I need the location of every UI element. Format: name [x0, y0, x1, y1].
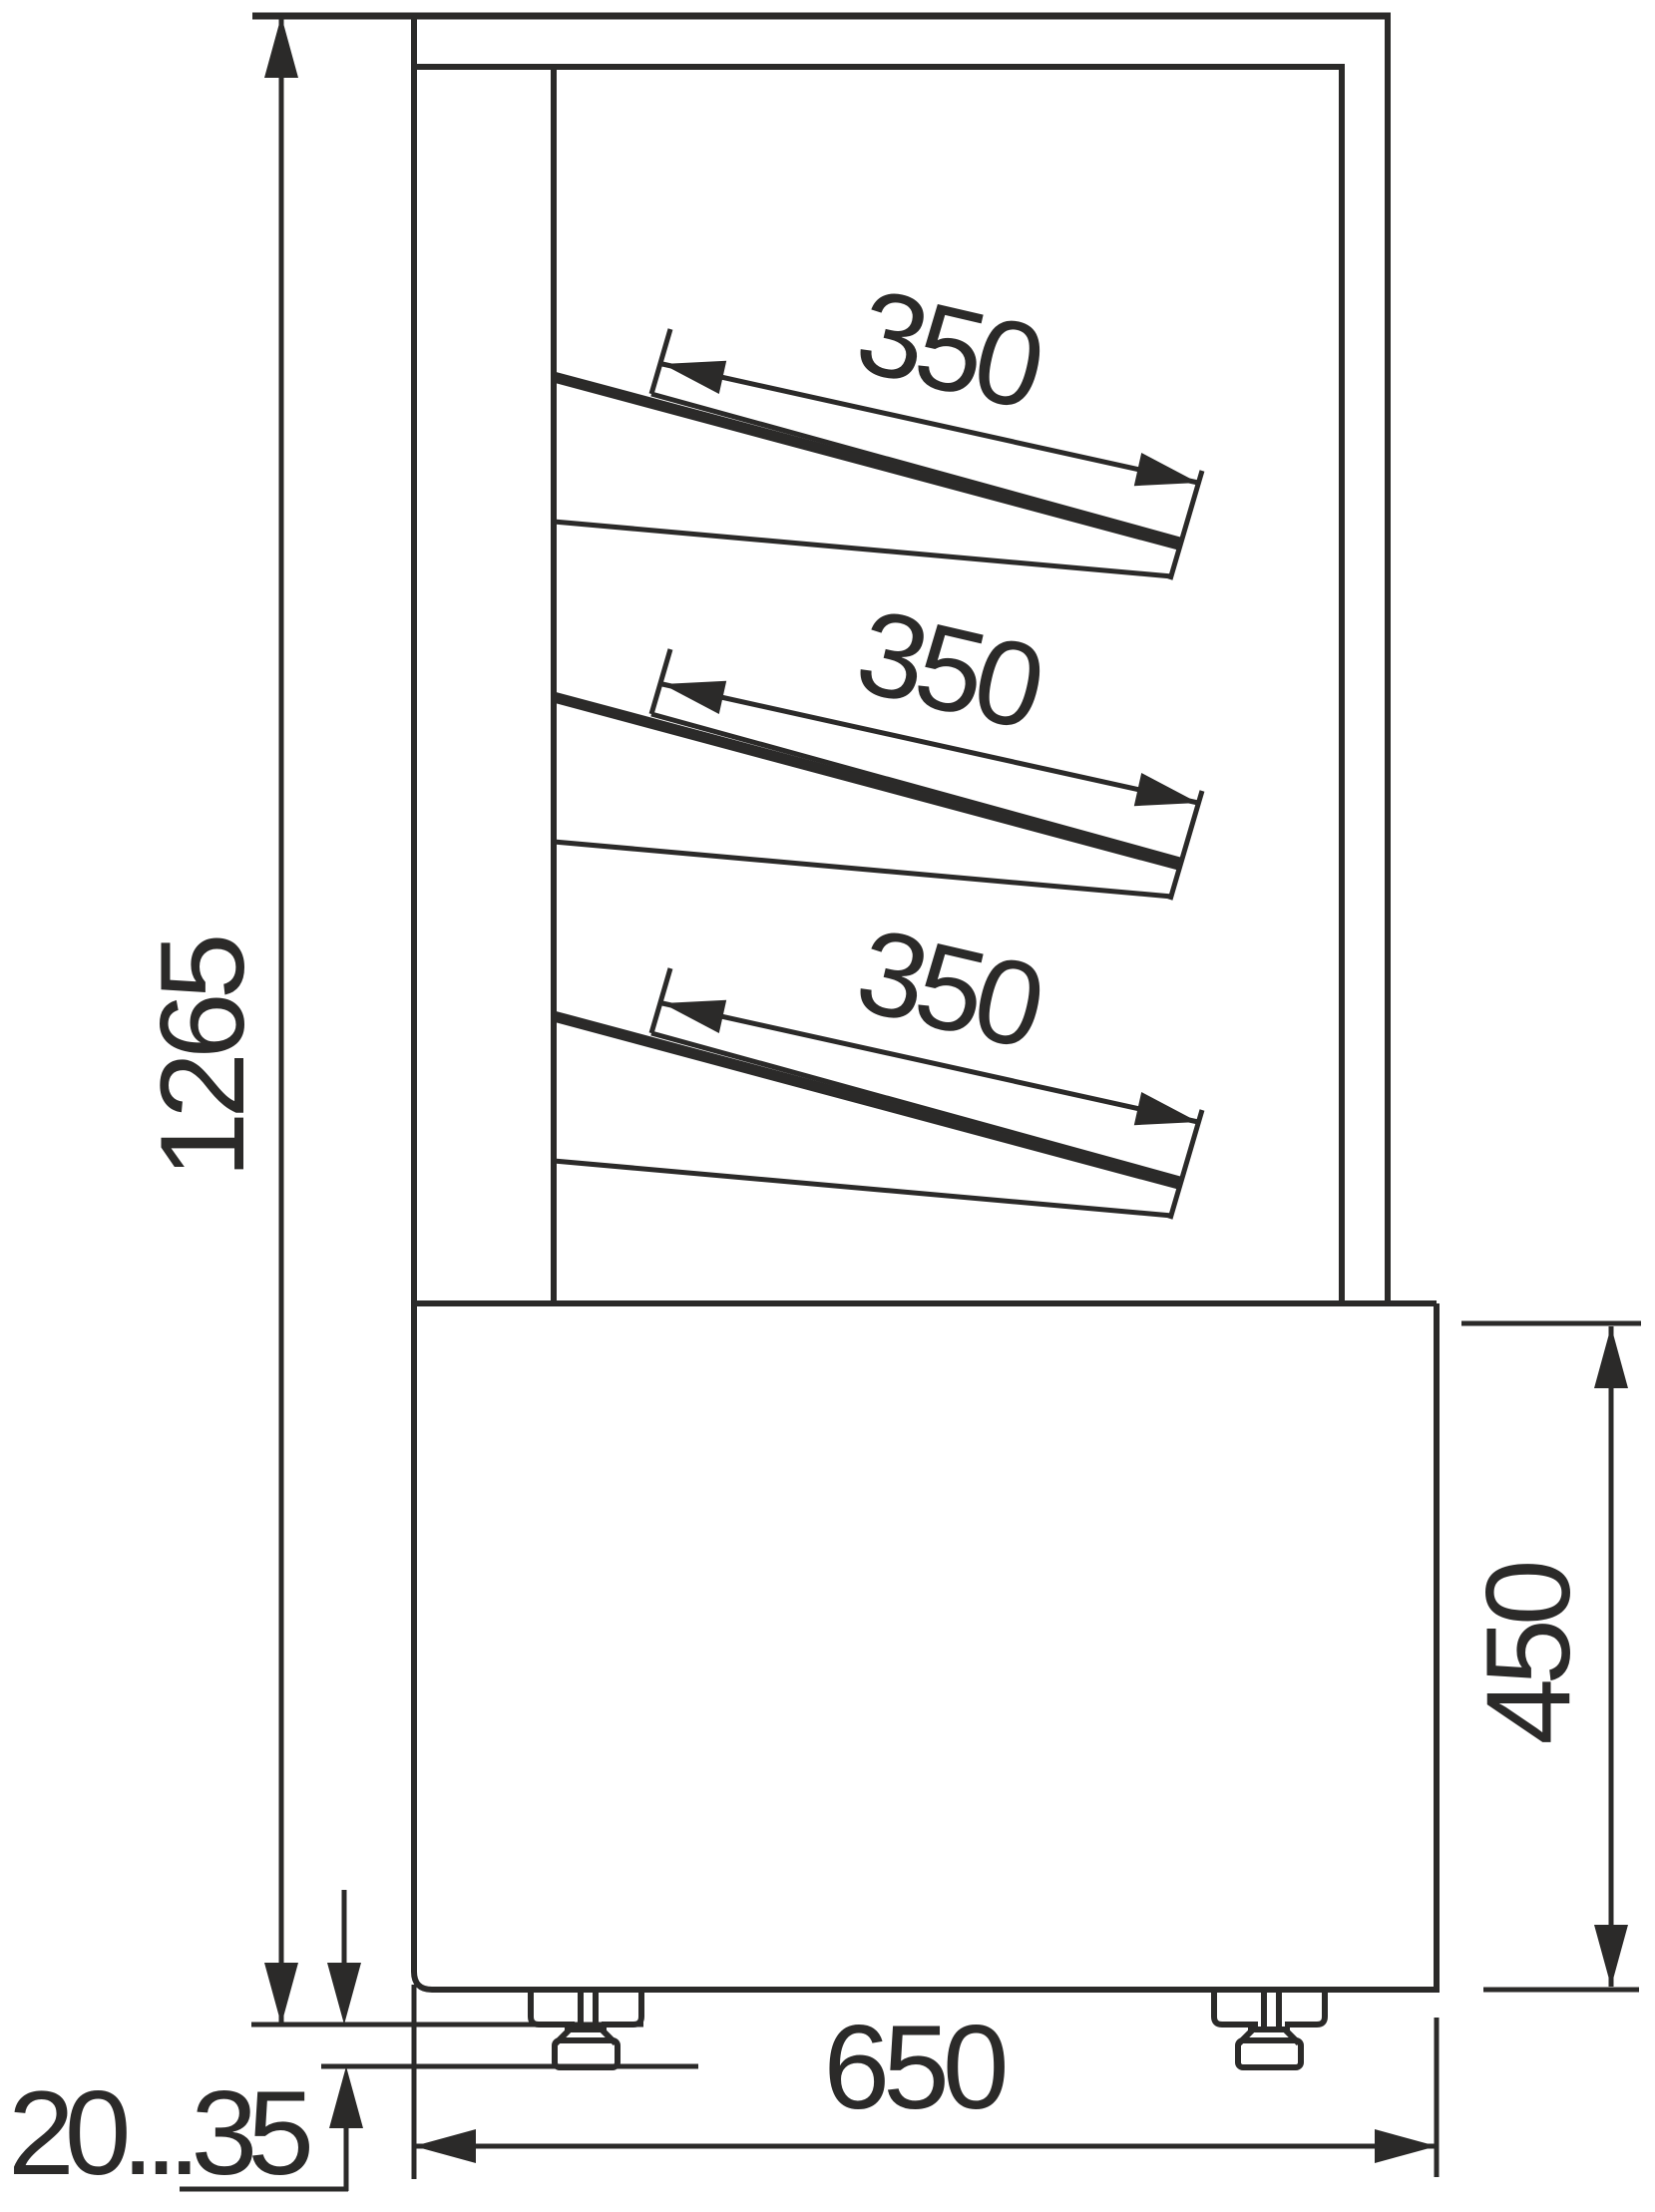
- foot-pad: [555, 2040, 618, 2067]
- shelf-1: 350: [554, 264, 1202, 579]
- shelf-surface-line: [554, 377, 1182, 546]
- leg-adjust-label: 20...35: [8, 2066, 309, 2200]
- arrowhead-down-icon: [1594, 1925, 1628, 1987]
- display-case-side-view-drawing: 350 350 350 1265 450: [0, 0, 1655, 2212]
- arrowhead-left-icon: [662, 361, 726, 394]
- leg-left: [531, 1990, 641, 2067]
- arrowhead-down-icon: [327, 1963, 361, 2025]
- shelf-front-rail-line: [651, 394, 1180, 540]
- shelf-support-bottom-line: [554, 522, 1172, 576]
- leg-mount-right-part: [602, 1990, 641, 2025]
- shelf-support-bottom-line: [554, 842, 1172, 897]
- shelf-2: 350: [554, 584, 1202, 900]
- leg-mount-right-part: [1285, 1990, 1325, 2025]
- arrowhead-right-icon: [1375, 2129, 1437, 2163]
- arrowhead-up-icon: [1594, 1326, 1628, 1388]
- leg-mount-left-part: [1214, 1990, 1258, 2025]
- dim-base-height: 450: [1461, 1323, 1641, 1990]
- arrowhead-right-icon: [1134, 1092, 1198, 1125]
- dim-tick-right: [1170, 471, 1202, 579]
- arrowhead-up-icon: [329, 2066, 363, 2128]
- base-height-label: 450: [1461, 1563, 1595, 1744]
- arrowhead-left-icon: [414, 2129, 476, 2163]
- shelf-front-rail-line: [651, 714, 1180, 860]
- dim-tick-right: [1170, 1110, 1202, 1219]
- dim-tick-left: [651, 968, 670, 1033]
- arrowhead-down-icon: [264, 1963, 298, 2025]
- dim-base-depth: 650: [414, 1985, 1437, 2179]
- dim-tick-left: [651, 329, 670, 394]
- overall-height-label: 1265: [136, 937, 269, 1178]
- leg-right: [1214, 1990, 1325, 2067]
- shelf-3: 350: [554, 904, 1202, 1219]
- dim-tick-right: [1170, 791, 1202, 900]
- shelf-surface-line: [554, 1016, 1182, 1185]
- arrowhead-right-icon: [1134, 773, 1198, 806]
- arrowhead-left-icon: [662, 1000, 726, 1033]
- base-depth-label: 650: [823, 2001, 1005, 2134]
- arrowhead-right-icon: [1134, 453, 1198, 486]
- cabinet-outline: [252, 14, 1437, 1990]
- shelf-front-rail-line: [651, 1033, 1180, 1179]
- technical-drawing-page: 350 350 350 1265 450: [0, 0, 1655, 2212]
- foot-pad: [1238, 2040, 1301, 2067]
- arrowhead-left-icon: [662, 681, 726, 714]
- leg-mount-left-part: [531, 1990, 575, 2025]
- shelf-support-bottom-line: [554, 1161, 1172, 1216]
- dim-tick-left: [651, 649, 670, 714]
- shelf-surface-line: [554, 697, 1182, 866]
- leg-stem: [1264, 1993, 1279, 2030]
- arrowhead-up-icon: [264, 16, 298, 78]
